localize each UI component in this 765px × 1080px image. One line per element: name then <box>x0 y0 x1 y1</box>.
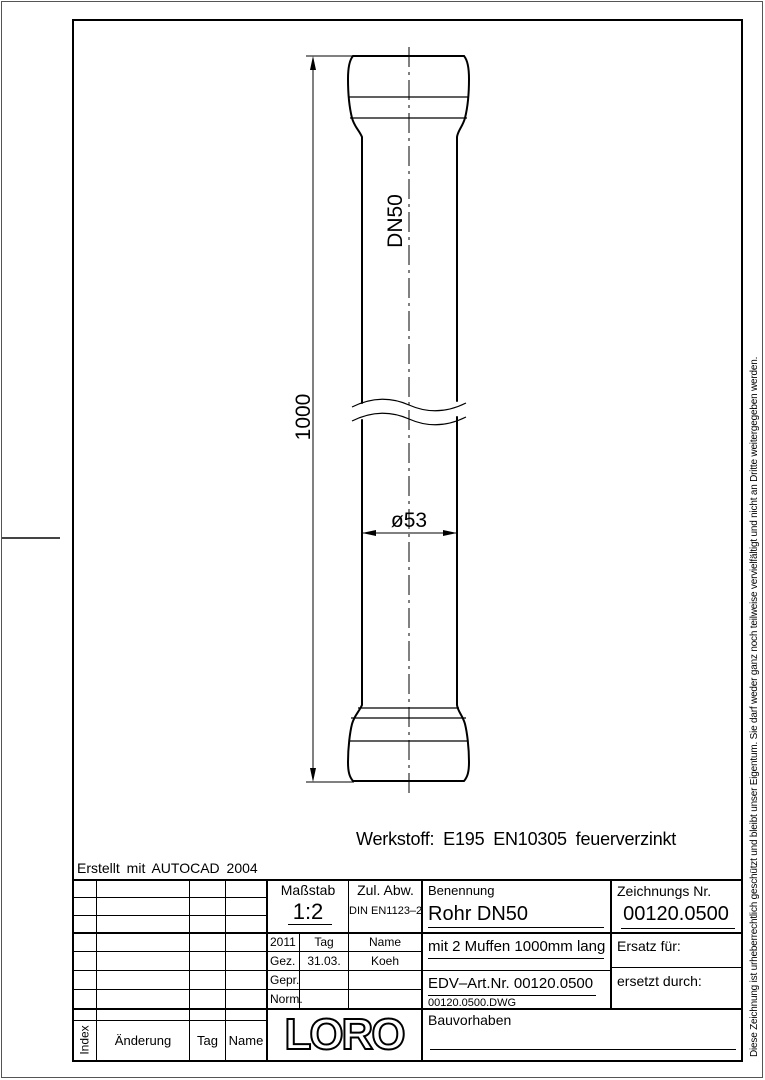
drawing-sheet: 1000 DN50 ø53 Werkstoff: E195 EN10305 fe… <box>0 0 765 1080</box>
copyright-notice: Diese Zeichnung ist urheberrechtlich ges… <box>749 287 763 1057</box>
zeichnungs-nr-value: 00120.0500 <box>611 903 741 925</box>
approval-row-label: Gepr. <box>270 974 299 987</box>
revision-header-index-cell: Index <box>73 1020 97 1060</box>
benennung-label: Benennung <box>428 884 495 898</box>
underline <box>428 927 604 928</box>
massstab-label: Maßstab <box>267 883 349 898</box>
ersatz-fuer-label: Ersatz für: <box>617 939 681 954</box>
revision-header-name: Name <box>226 1020 266 1060</box>
massstab-value: 1:2 <box>267 900 349 924</box>
table-line <box>73 915 267 916</box>
table-line <box>610 879 612 1009</box>
benennung-line2: mit 2 Muffen 1000mm lang <box>428 939 605 956</box>
zul-abw-label: Zul. Abw. <box>349 883 422 898</box>
zul-abw-value: DIN EN1123–2 <box>349 905 422 917</box>
dimension-lines <box>306 56 457 782</box>
table-line <box>73 970 611 971</box>
table-line <box>73 897 267 898</box>
dim-diameter-label: ø53 <box>391 509 427 532</box>
bauvorhaben-label: Bauvorhaben <box>428 1013 511 1028</box>
table-line <box>73 989 422 990</box>
approval-row-label: Gez. <box>270 955 295 968</box>
ersetzt-durch-label: ersetzt durch: <box>617 974 702 989</box>
dwg-filename: 00120.0500.DWG <box>428 997 516 1009</box>
approval-row-name: Koeh <box>349 955 421 968</box>
revision-header-tag: Tag <box>190 1020 225 1060</box>
revision-header-index: Index <box>78 1025 92 1054</box>
zeichnungs-nr-label: Zeichnungs Nr. <box>617 884 711 899</box>
table-line <box>611 967 741 968</box>
underline <box>428 958 604 959</box>
pipe-size-label: DN50 <box>384 194 407 248</box>
approval-col-tag: Tag <box>300 936 348 949</box>
dimension-arrows <box>310 56 457 782</box>
underline <box>430 1049 736 1050</box>
material-note: Werkstoff: E195 EN10305 feuerverzinkt <box>356 830 676 850</box>
dim-length-label: 1000 <box>292 394 315 441</box>
approval-col-name: Name <box>349 936 421 949</box>
loro-logo: LORO <box>267 1009 421 1060</box>
loro-logo-text: LORO <box>284 1010 404 1059</box>
table-line <box>73 951 422 952</box>
approval-row-label: Norm. <box>270 993 303 1006</box>
revision-header-aenderung: Änderung <box>97 1020 189 1060</box>
benennung-value: Rohr DN50 <box>428 903 528 925</box>
underline <box>621 928 735 929</box>
titleblock-top-line <box>73 879 741 881</box>
table-line <box>73 932 741 934</box>
created-with-note: Erstellt mit AUTOCAD 2004 <box>77 861 258 876</box>
approval-year: 2011 <box>270 936 296 949</box>
approval-row-tag: 31.03. <box>300 955 348 968</box>
underline <box>428 995 596 996</box>
edv-art-nr: EDV–Art.Nr. 00120.0500 <box>428 976 593 993</box>
